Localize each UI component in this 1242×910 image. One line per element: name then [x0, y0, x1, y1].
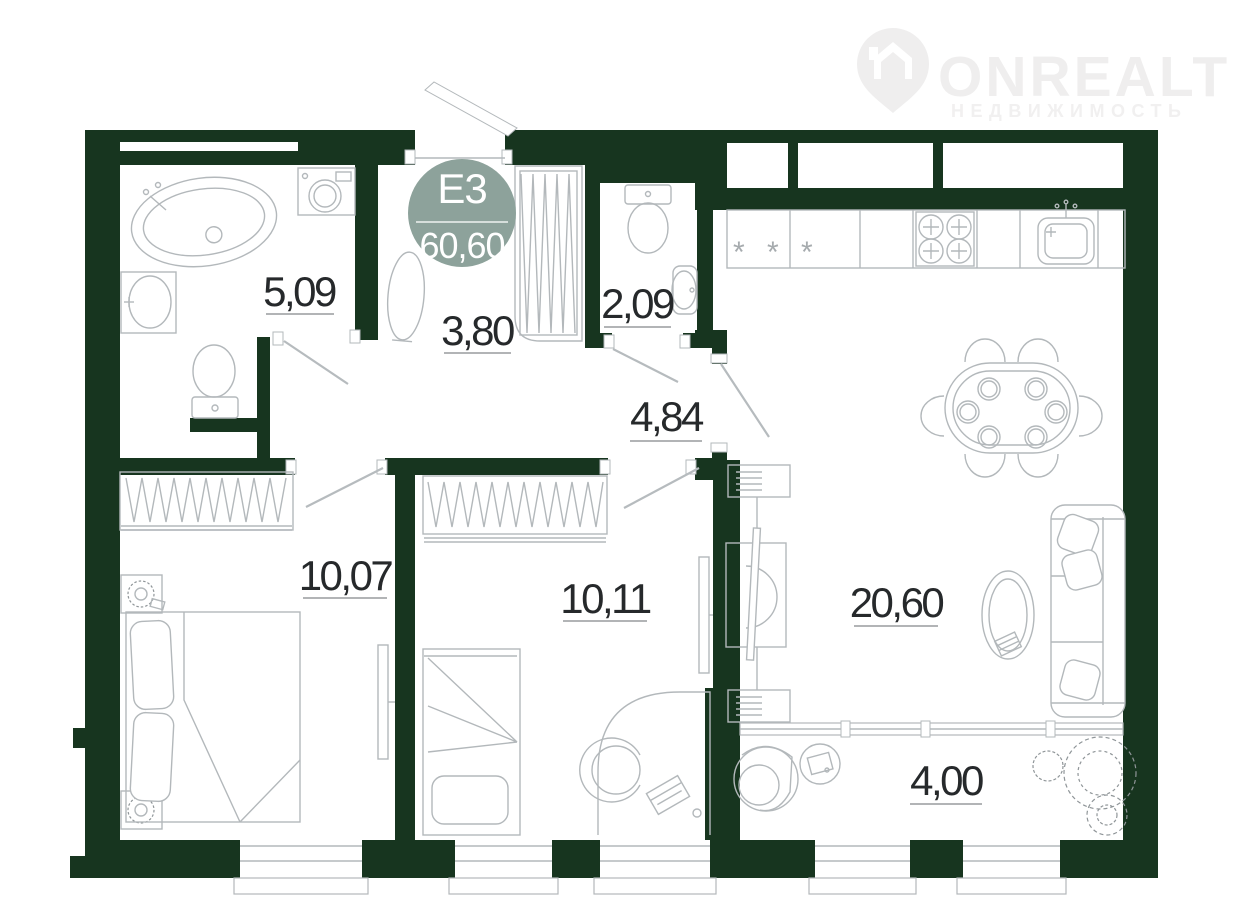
window-balcony-right: [957, 846, 1066, 894]
wc-sink: [672, 266, 697, 314]
room-label-bathroom: 5,09: [263, 268, 336, 315]
bathroom-door: [273, 330, 360, 384]
double-bed: [126, 612, 300, 822]
coat-closet: [515, 166, 582, 341]
balcony-glazing: [740, 721, 1123, 737]
wc-toilet: [625, 185, 671, 253]
nightstand-lamp-top: [121, 575, 165, 613]
room-label-living: 20,60: [850, 579, 944, 626]
bedroom1-door: [286, 460, 387, 507]
bedroom1-wardrobe: [120, 472, 293, 530]
window-bedroom2: [449, 846, 558, 894]
logo-name: ONREALT: [938, 45, 1230, 109]
bedroom2-wardrobe: [423, 476, 607, 542]
svg-text:4,00: 4,00: [910, 757, 983, 804]
room-label-balcony: 4,00: [910, 757, 983, 804]
plants: [1033, 737, 1136, 835]
svg-text:4,84: 4,84: [630, 393, 704, 440]
window-bedroom2-desk: [594, 846, 716, 894]
room-label-bedroom2: 10,11: [560, 575, 651, 622]
kitchen-furniture: * * *: [727, 200, 1125, 269]
bedroom1-tv: [378, 645, 395, 759]
bedroom2-furniture: [423, 476, 713, 835]
floor-plan-page: ONREALT НЕДВИЖИМОСТЬ: [0, 0, 1242, 910]
dining-set: [921, 339, 1102, 477]
svg-text:10,11: 10,11: [560, 575, 651, 622]
window-bedroom1: [234, 846, 368, 894]
balcony-table: [800, 744, 840, 784]
room-label-corridor: 4,84: [630, 393, 704, 441]
bath-faucet-icon: [144, 183, 167, 211]
floor-plan-svg: ONREALT НЕДВИЖИМОСТЬ: [0, 0, 1242, 910]
unit-area: 60,60: [419, 225, 504, 266]
washing-machine: [298, 168, 355, 215]
svg-text:2,09: 2,09: [601, 280, 674, 327]
room-label-wc: 2,09: [601, 280, 674, 327]
bathroom-sink: [121, 272, 176, 333]
room-label-bedroom1: 10,07: [299, 552, 393, 599]
desk: [580, 692, 710, 835]
papasan-chair: [734, 746, 798, 811]
svg-text:20,60: 20,60: [850, 579, 944, 626]
svg-text:5,09: 5,09: [263, 268, 336, 315]
onrealt-logo: ONREALT НЕДВИЖИМОСТЬ: [857, 28, 1230, 121]
bathroom-toilet: [192, 345, 238, 418]
svg-text:10,07: 10,07: [299, 552, 393, 599]
unit-number: Е3: [437, 165, 486, 212]
svg-text:3,80: 3,80: [441, 307, 514, 354]
room-label-entry-hall: 3,80: [441, 307, 514, 354]
fridge-icon: * * *: [733, 236, 820, 269]
wc-door: [604, 335, 690, 382]
living-door: [711, 354, 769, 452]
entrance-door: [405, 82, 517, 164]
tv-screen: [747, 528, 761, 660]
sofa: [1051, 505, 1125, 717]
bedroom1-furniture: [120, 472, 395, 829]
rug: [982, 571, 1034, 659]
unit-badge: Е3 60,60: [408, 159, 516, 267]
stove-icon: [916, 212, 974, 266]
window-balcony-left: [809, 846, 916, 894]
logo-subtitle: НЕДВИЖИМОСТЬ: [951, 101, 1187, 121]
bedroom2-door: [600, 460, 699, 508]
single-bed: [423, 649, 520, 835]
bathtub: [126, 168, 283, 275]
bedroom2-tv: [699, 557, 713, 673]
